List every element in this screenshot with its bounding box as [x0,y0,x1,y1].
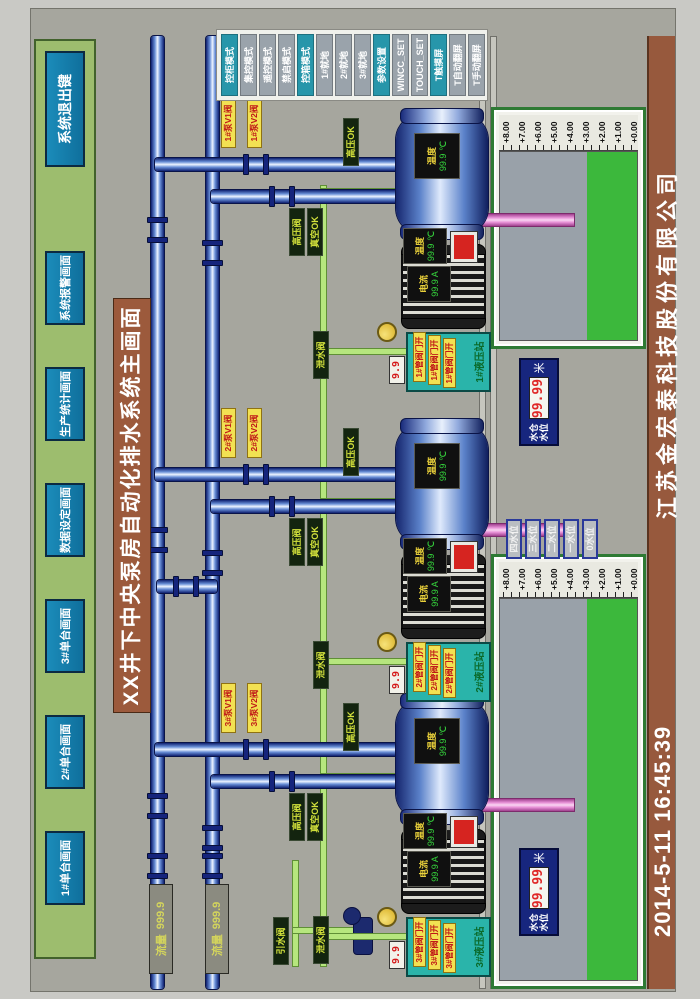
discharge-riser-2 [211,500,401,513]
valve-open-tag: 2#管阀门开 [413,642,426,692]
discharge-riser-2 [211,775,401,788]
level-label: 水仓水位 [529,914,549,932]
hp-ok-tag: 高压OK [343,703,359,751]
pump-temp-display: 温度 99.9 ℃ [414,443,460,489]
nav-bar: 1#单台画面 2#单台画面 3#单台画面 数据设定画面 生产统计画面 系统报警画… [34,39,96,959]
mode-button-local-3[interactable]: 3#就地 [354,34,371,96]
valve-status-label: 2#泵V1阀 [221,408,236,458]
drain-valve-tag: 泄水阀 [313,331,329,379]
footer-bar: 2014-5-11 16:45:39 江苏金宏泰科技股份有限公司 [647,36,675,989]
valve-flange-icon [269,496,295,517]
valve-open-tag: 3#管阀门开 [443,923,456,973]
valve-open-tag: 1#管阀门开 [443,338,456,388]
hydraulic-station: 1#管阀门开 1#管阀门开 1#管阀门开 1#液压站 [406,332,491,392]
valve-flange-icon [243,464,269,485]
vacuum-ok-tag: 真空OK [307,793,323,841]
level-button-4[interactable]: 四水位 [506,519,522,559]
valve-open-tag: 3#管阀门开 [428,920,441,970]
mode-button-param-set[interactable]: 参数设置 [373,34,390,96]
hydraulic-station-title: 1#液压站 [471,334,486,390]
hydraulic-drop-line [321,659,411,664]
discharge-riser-1 [155,743,401,756]
level-unit: 米 [531,853,547,864]
mode-button-wincc-set[interactable]: WINCC_SET [392,34,409,96]
pressure-gauge: 9.9 [389,356,405,384]
motor-temp-display: 温度 99.9 ℃ [403,538,447,574]
pressure-gauge: 9.9 [389,941,405,969]
mode-button-manual-page[interactable]: T手动翻屏 [468,34,485,96]
hp-ok-tag: 高压OK [343,428,359,476]
sump-level-display-right: 水仓水位 99.99 米 [519,358,559,446]
nav-button-pump1-screen[interactable]: 1#单台画面 [45,831,85,905]
level-button-3[interactable]: 三水位 [525,519,541,559]
motor-temp-display: 温度 99.9 ℃ [403,228,447,264]
level-value: 99.99 [529,378,549,420]
level-button-0[interactable]: 0水位 [582,519,598,559]
photo-frame: 引水阀 流量999.9 流量999.9 +8.00+7.00 [0,0,700,999]
page-title: XX井下中央泵房自动化排水系统主画面 [113,298,151,713]
valve-status-label: 2#泵V2阀 [247,408,262,458]
mode-button-local-1[interactable]: 1#就地 [316,34,333,96]
level-setpoint-buttons: 四水位 三水位 二水位 一水位 0水位 [506,519,598,559]
rotated-scada-view: 引水阀 流量999.9 流量999.9 +8.00+7.00 [0,0,700,999]
hydraulic-station: 3#管阀门开 3#管阀门开 3#管阀门开 3#液压站 [406,917,491,977]
hp-valve-tag: 高压阀 [289,793,305,841]
discharge-riser-2 [211,190,401,203]
nav-button-data-settings[interactable]: 数据设定画面 [45,483,85,557]
vacuum-ok-tag: 真空OK [307,518,323,566]
valve-open-tag: 3#管阀门开 [413,917,426,967]
pressure-gauge: 9.9 [389,666,405,694]
mode-button-box[interactable]: 控箱模式 [297,34,314,96]
valve-open-tag: 1#管阀门开 [428,335,441,385]
level-value: 99.99 [529,868,549,910]
motor-current-display: 电流 99.9 A [407,266,451,302]
pump-temp-display: 温度 99.9 ℃ [414,718,460,764]
hp-valve-tag: 高压阀 [289,208,305,256]
level-button-1[interactable]: 一水位 [563,519,579,559]
valve-open-tag: 1#管阀门开 [413,332,426,382]
nav-button-pump2-screen[interactable]: 2#单台画面 [45,715,85,789]
oil-pump-icon [377,907,397,927]
valve-flange-icon [269,186,295,207]
run-status-lamp [451,817,477,847]
mode-button-cabinet[interactable]: 控柜模式 [221,34,238,96]
hydraulic-drop-line [321,349,411,354]
motor-current-display: 电流 99.9 A [407,576,451,612]
nav-button-alarm-screen[interactable]: 系统报警画面 [45,251,85,325]
valve-open-tag: 2#管阀门开 [443,648,456,698]
nav-button-pump3-screen[interactable]: 3#单台画面 [45,599,85,673]
datetime: 2014-5-11 16:45:39 [650,726,676,937]
level-label: 水仓水位 [529,424,549,442]
valve-open-tag: 2#管阀门开 [428,645,441,695]
pump-temp-display: 温度 99.9 ℃ [414,133,460,179]
mode-panel: 控柜模式 集控模式 遥控模式 禁启模式 控箱模式 1#就地 2#就地 3#就地 … [216,29,488,101]
mode-button-local-2[interactable]: 2#就地 [335,34,352,96]
hydraulic-station-title: 3#液压站 [471,919,486,975]
company-name: 江苏金宏泰科技股份有限公司 [650,168,682,519]
motor-temp-display: 温度 99.9 ℃ [403,813,447,849]
oil-pump-icon [377,322,397,342]
valve-status-label: 1#泵V1阀 [221,98,236,148]
discharge-riser-1 [155,468,401,481]
mode-button-touch-set[interactable]: TOUCH_SET [411,34,428,96]
level-unit: 米 [531,363,547,374]
hp-ok-tag: 高压OK [343,118,359,166]
valve-flange-icon [243,154,269,175]
mode-button-remote[interactable]: 遥控模式 [259,34,276,96]
mode-button-inhibit[interactable]: 禁启模式 [278,34,295,96]
hydraulic-station: 2#管阀门开 2#管阀门开 2#管阀门开 2#液压站 [406,642,491,702]
vacuum-ok-tag: 真空OK [307,208,323,256]
run-status-lamp [451,542,477,572]
level-button-2[interactable]: 二水位 [544,519,560,559]
motor-current-display: 电流 99.9 A [407,851,451,887]
run-status-lamp [451,232,477,262]
sump-level-display-left: 水仓水位 99.99 米 [519,848,559,936]
drain-valve-tag: 泄水阀 [313,916,329,964]
hydraulic-station-title: 2#液压站 [471,644,486,700]
valve-status-label: 1#泵V2阀 [247,98,262,148]
drain-valve-tag: 泄水阀 [313,641,329,689]
valve-flange-icon [269,771,295,792]
system-exit-button[interactable]: 系统退出键 [45,51,85,167]
mode-button-auto-page[interactable]: T自动翻屏 [449,34,466,96]
discharge-riser-1 [155,158,401,171]
mode-button-touchscreen[interactable]: T触摸屏 [430,34,447,96]
scada-screen: 引水阀 流量999.9 流量999.9 +8.00+7.00 [30,8,676,992]
hydraulic-drop-line [321,934,411,939]
oil-pump-icon [377,632,397,652]
mode-button-central[interactable]: 集控模式 [240,34,257,96]
hp-valve-tag: 高压阀 [289,518,305,566]
nav-button-production-stats[interactable]: 生产统计画面 [45,367,85,441]
pump-unit-3: 3#泵V1阀 3#泵V2阀 高压OK 高压阀 真空OK 泄水阀 9.9 电流 9… [31,669,677,979]
valve-flange-icon [243,739,269,760]
